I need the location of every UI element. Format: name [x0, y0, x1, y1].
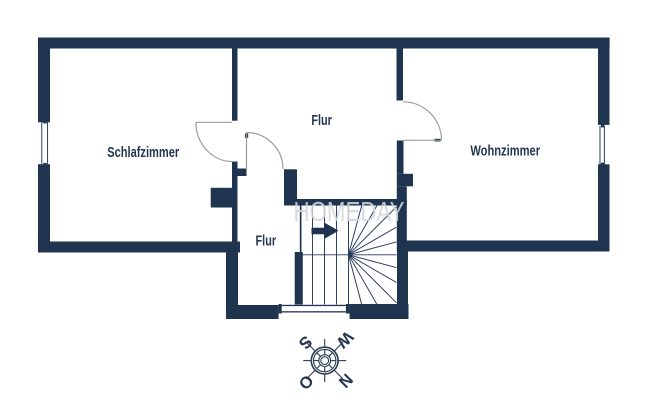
svg-text:HOMEDAY: HOMEDAY [294, 196, 405, 227]
svg-text:Wohnzimmer: Wohnzimmer [470, 143, 540, 159]
svg-text:Schlafzimmer: Schlafzimmer [107, 145, 179, 161]
svg-text:Flur: Flur [311, 113, 332, 129]
svg-text:Flur: Flur [256, 234, 277, 250]
